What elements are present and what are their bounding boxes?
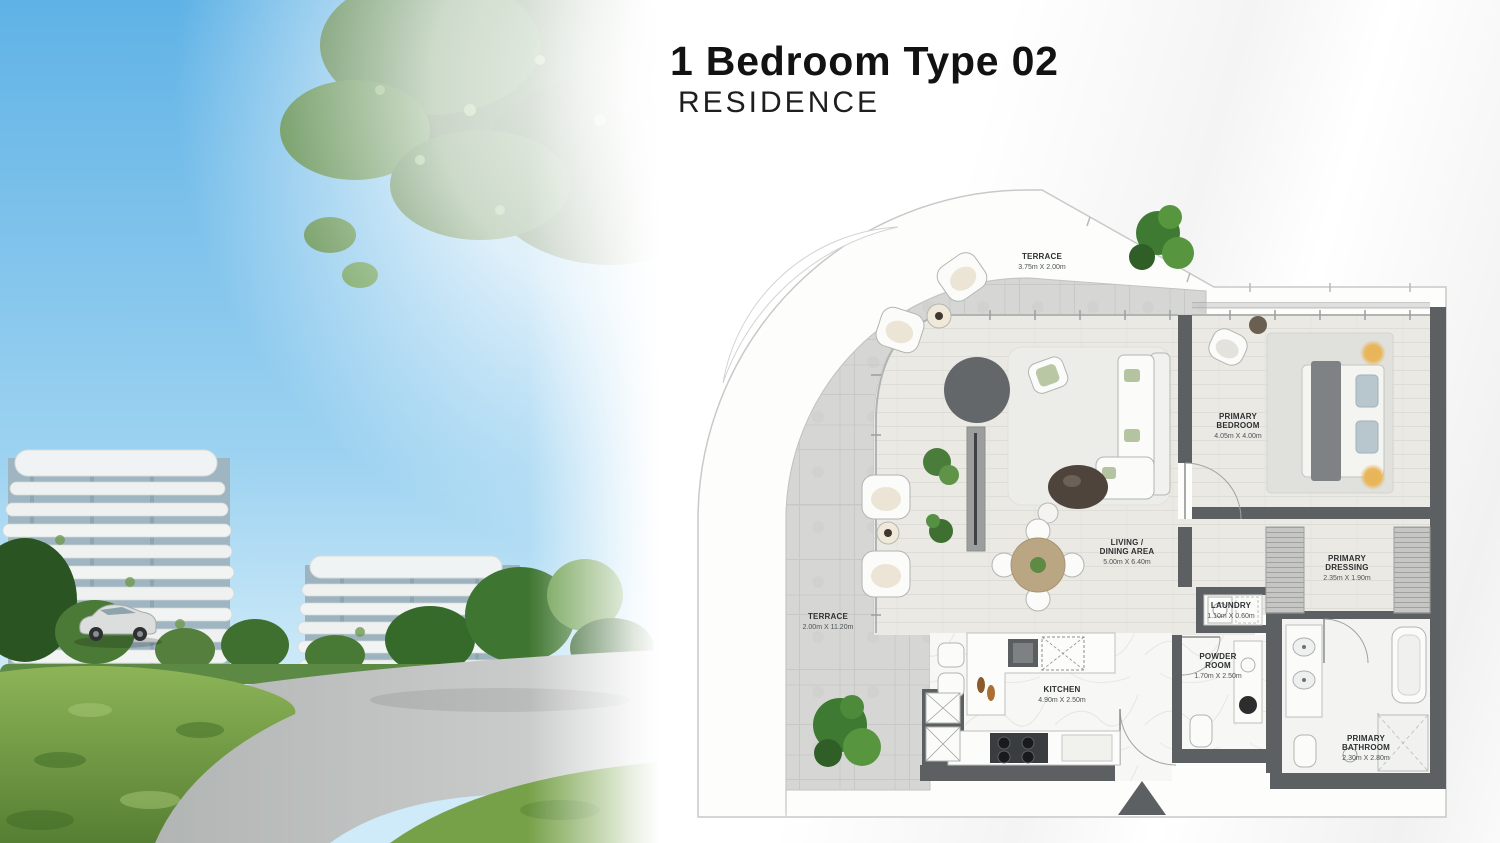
dims-bathroom: 2.30m X 2.80m bbox=[1342, 755, 1390, 762]
bed-icon bbox=[1302, 361, 1384, 481]
label-terrace-top: TERRACE bbox=[1022, 252, 1063, 261]
label-terrace-side: TERRACE bbox=[808, 612, 849, 621]
label-kitchen: KITCHEN bbox=[1044, 685, 1081, 694]
round-table-icon bbox=[944, 357, 1010, 423]
bedside-table-icon bbox=[1249, 316, 1267, 334]
label-bathroom-1: PRIMARY bbox=[1347, 734, 1385, 743]
page-title: 1 Bedroom Type 02 bbox=[670, 40, 1059, 83]
label-dressing-1: PRIMARY bbox=[1328, 554, 1366, 563]
label-living-1: LIVING / bbox=[1111, 538, 1144, 547]
label-living-2: DINING AREA bbox=[1100, 547, 1155, 556]
dims-living: 5.00m X 6.40m bbox=[1103, 559, 1151, 566]
coffee-table-icon bbox=[1048, 465, 1108, 509]
closet-icons bbox=[926, 693, 960, 761]
dims-powder: 1.70m X 2.50m bbox=[1194, 673, 1242, 680]
page-subtitle: RESIDENCE bbox=[678, 87, 1059, 119]
kitchen-counter-icon bbox=[948, 731, 1120, 765]
basin-icon bbox=[1239, 696, 1257, 714]
dims-bedroom: 4.05m X 4.00m bbox=[1214, 433, 1262, 440]
stool-icon bbox=[938, 643, 964, 667]
titleblock: 1 Bedroom Type 02 RESIDENCE bbox=[670, 40, 1059, 119]
render-scene bbox=[0, 0, 660, 843]
label-powder-2: ROOM bbox=[1205, 661, 1231, 670]
label-bathroom-2: BATHROOM bbox=[1342, 743, 1390, 752]
label-bedroom-2: BEDROOM bbox=[1216, 421, 1259, 430]
label-laundry: LAUNDRY bbox=[1211, 601, 1252, 610]
floor-plan-svg: TERRACE 3.75m X 2.00m PRIMARY BEDROOM 4.… bbox=[690, 175, 1460, 835]
dims-laundry: 1.10m X 0.60m bbox=[1207, 613, 1255, 620]
dims-kitchen: 4.90m X 2.50m bbox=[1038, 697, 1086, 704]
dims-terrace-top: 3.75m X 2.00m bbox=[1018, 264, 1066, 271]
label-dressing-2: DRESSING bbox=[1325, 563, 1368, 572]
label-bedroom-1: PRIMARY bbox=[1219, 412, 1257, 421]
toilet-icon bbox=[1294, 735, 1316, 767]
entry-vestibule bbox=[1115, 633, 1172, 781]
dims-terrace-side: 2.00m X 11.20m bbox=[803, 624, 854, 631]
floor-plan: TERRACE 3.75m X 2.00m PRIMARY BEDROOM 4.… bbox=[690, 175, 1460, 835]
dims-dressing: 2.35m X 1.90m bbox=[1323, 575, 1371, 582]
hero-render-photo bbox=[0, 0, 660, 843]
label-powder-1: POWDER bbox=[1199, 652, 1236, 661]
toilet-icon bbox=[1190, 715, 1212, 747]
brochure-page: 1 Bedroom Type 02 RESIDENCE bbox=[0, 0, 1500, 843]
